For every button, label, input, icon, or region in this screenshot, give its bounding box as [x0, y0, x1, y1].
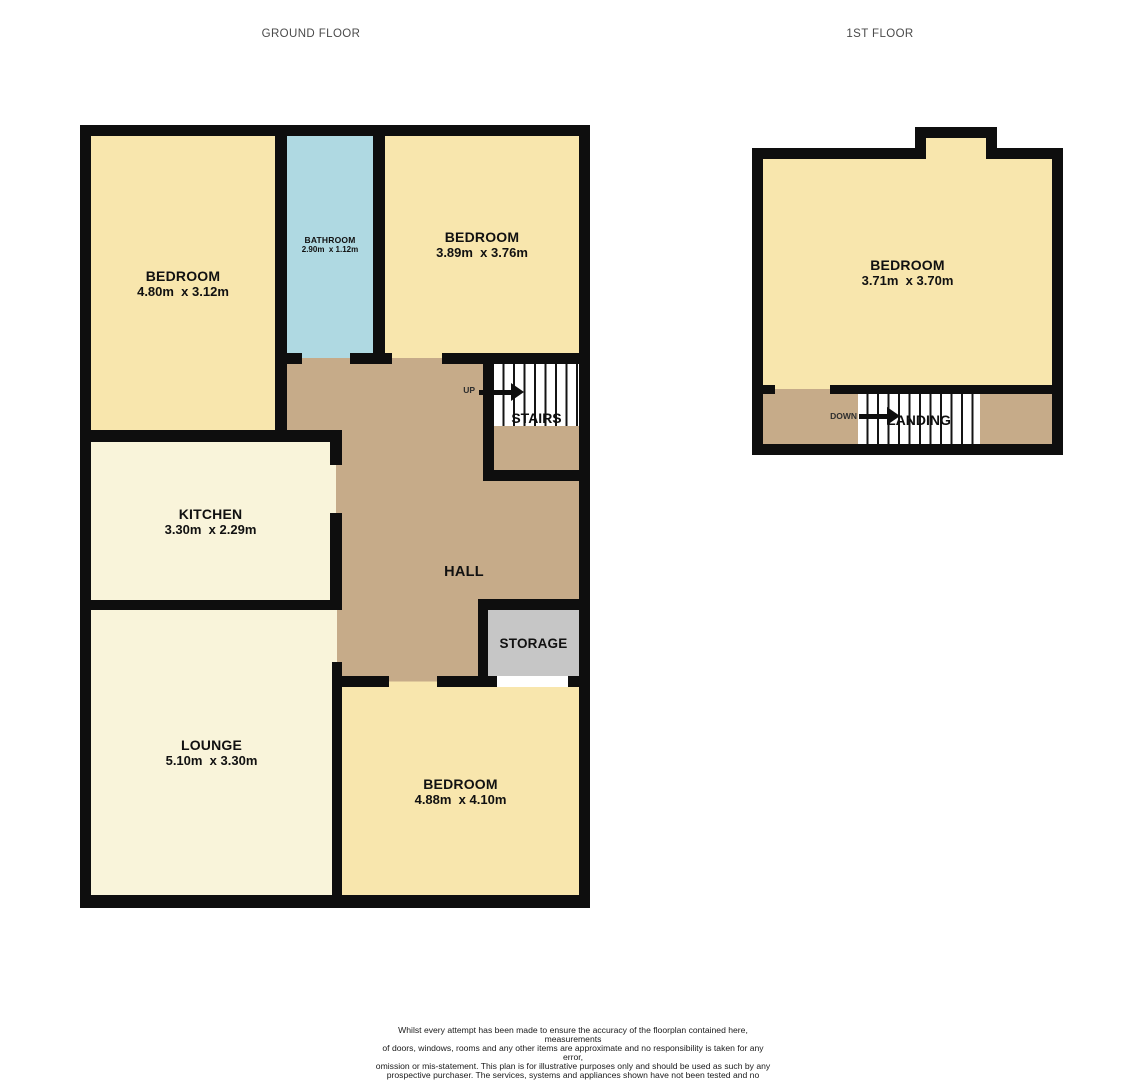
- room-lounge: LOUNGE 5.10m x 3.30m: [91, 610, 332, 895]
- up-arrow-icon: [511, 383, 524, 401]
- disclaimer-line: of doors, windows, rooms and any other i…: [373, 1044, 773, 1062]
- room-dimensions: 5.10m x 3.30m: [166, 753, 258, 768]
- disclaimer-line: Whilst every attempt has been made to en…: [373, 1026, 773, 1044]
- room-kitchen: KITCHEN 3.30m x 2.29m: [91, 442, 330, 600]
- first-floor-title: 1ST FLOOR: [780, 28, 980, 40]
- room-bathroom: BATHROOM 2.90m x 1.12m: [287, 136, 373, 353]
- room-dimensions: 4.88m x 4.10m: [415, 792, 507, 807]
- room-name: BEDROOM: [423, 776, 498, 792]
- room-name: BATHROOM: [304, 235, 355, 245]
- hall-label: HALL: [404, 564, 524, 580]
- door-opening: [389, 676, 437, 687]
- stairs-up-label: UP: [441, 385, 475, 395]
- room-name: BEDROOM: [146, 268, 221, 284]
- room-bedroom-top-right: BEDROOM 3.89m x 3.76m: [385, 136, 579, 353]
- door-opening: [775, 385, 830, 394]
- room-storage: STORAGE: [488, 610, 579, 676]
- room-dimensions: 4.80m x 3.12m: [137, 284, 229, 299]
- hall-area: [483, 481, 579, 599]
- stairs-down-label: DOWN: [813, 411, 857, 421]
- door-opening: [392, 353, 442, 364]
- door-opening: [302, 353, 350, 364]
- room-dimensions: 2.90m x 1.12m: [302, 245, 358, 254]
- room-dimensions: 3.89m x 3.76m: [436, 245, 528, 260]
- hall-area: [342, 599, 478, 676]
- door-opening: [330, 465, 342, 513]
- room-name: LOUNGE: [181, 737, 242, 753]
- landing-area: [980, 394, 1052, 444]
- hall-area: [287, 364, 483, 430]
- door-opening: [497, 676, 568, 687]
- room-first-floor-bedroom: BEDROOM 3.71m x 3.70m: [763, 159, 1052, 385]
- stairs-label: STAIRS: [494, 410, 579, 426]
- room-name: BEDROOM: [445, 229, 520, 245]
- room-name: BEDROOM: [870, 257, 945, 273]
- floorplan-page: GROUND FLOOR 1ST FLOOR BEDROOM 4.80m x 3…: [0, 0, 1145, 1080]
- ground-floor-title: GROUND FLOOR: [211, 28, 411, 40]
- door-opening: [332, 610, 342, 662]
- room-dimensions: 3.30m x 2.29m: [165, 522, 257, 537]
- disclaimer-line: prospective purchaser. The services, sys…: [373, 1071, 773, 1080]
- up-arrow-icon: [479, 390, 511, 395]
- room-name: KITCHEN: [179, 506, 243, 522]
- first-floor-bay-interior: [926, 138, 986, 160]
- stairs-lower-landing: [494, 426, 579, 470]
- room-bedroom-bottom: BEDROOM 4.88m x 4.10m: [342, 687, 579, 895]
- landing-label: LANDING: [858, 412, 980, 428]
- disclaimer: Whilst every attempt has been made to en…: [373, 1026, 773, 1080]
- room-name: STORAGE: [500, 636, 568, 651]
- room-dimensions: 3.71m x 3.70m: [862, 273, 954, 288]
- room-bedroom-top-left: BEDROOM 4.80m x 3.12m: [91, 136, 275, 430]
